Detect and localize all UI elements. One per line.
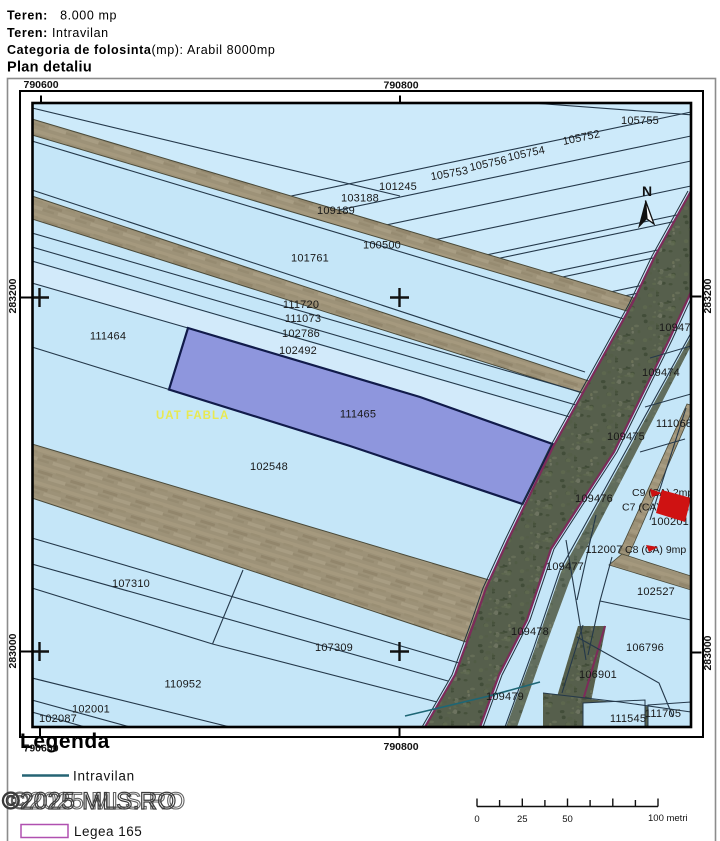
svg-text:101245: 101245 xyxy=(379,181,417,193)
svg-text:110952: 110952 xyxy=(164,679,201,691)
svg-text:102786: 102786 xyxy=(282,328,320,340)
svg-text:109477: 109477 xyxy=(546,561,584,573)
svg-text:105755: 105755 xyxy=(621,115,659,127)
svg-text:107310: 107310 xyxy=(112,578,150,590)
svg-text:102527: 102527 xyxy=(637,586,675,598)
svg-text:283200: 283200 xyxy=(702,278,714,313)
svg-text:790800: 790800 xyxy=(384,741,419,753)
svg-text:Categoria de folosinta(mp): Ar: Categoria de folosinta(mp): Arabil 8000m… xyxy=(7,43,275,57)
svg-text:25: 25 xyxy=(517,814,528,825)
svg-text:109478: 109478 xyxy=(511,626,549,638)
svg-text:50: 50 xyxy=(562,814,573,825)
svg-text:111705: 111705 xyxy=(645,708,681,720)
svg-text:C8 (CA) 9mp: C8 (CA) 9mp xyxy=(625,544,686,556)
svg-text:111465: 111465 xyxy=(340,409,376,421)
svg-text:0: 0 xyxy=(474,814,479,825)
svg-text:790600: 790600 xyxy=(24,743,59,755)
svg-text:109189: 109189 xyxy=(317,205,355,217)
svg-text:102548: 102548 xyxy=(250,461,288,473)
svg-text:106796: 106796 xyxy=(626,642,664,654)
svg-text:100 metri: 100 metri xyxy=(648,813,688,824)
svg-text:Teren: Intravilan: Teren: Intravilan xyxy=(7,26,109,40)
svg-text:109479: 109479 xyxy=(486,691,524,703)
svg-text:283000: 283000 xyxy=(702,635,714,670)
svg-text:111073: 111073 xyxy=(285,313,321,325)
svg-text:111545: 111545 xyxy=(610,713,646,725)
svg-text:UAT FABLA: UAT FABLA xyxy=(156,410,229,422)
svg-text:111464: 111464 xyxy=(90,331,126,343)
svg-text:102087: 102087 xyxy=(39,713,77,725)
svg-text:Plan detaliu: Plan detaliu xyxy=(7,60,92,76)
svg-text:283200: 283200 xyxy=(7,278,19,313)
svg-text:112007: 112007 xyxy=(585,544,622,556)
svg-text:100500: 100500 xyxy=(363,240,401,252)
svg-text:109476: 109476 xyxy=(575,493,613,505)
svg-text:109475: 109475 xyxy=(607,431,645,443)
svg-text:Teren: 8.000 mp: Teren: 8.000 mp xyxy=(7,9,117,23)
svg-text:Intravilan: Intravilan xyxy=(73,769,135,784)
svg-text:107309: 107309 xyxy=(315,642,353,654)
svg-text:111068: 111068 xyxy=(656,418,692,430)
svg-text:103188: 103188 xyxy=(341,193,379,205)
svg-text:102492: 102492 xyxy=(279,345,317,357)
svg-text:©2025 MLS.RO: ©2025 MLS.RO xyxy=(11,788,186,815)
svg-text:283000: 283000 xyxy=(7,633,19,668)
svg-text:790600: 790600 xyxy=(24,79,59,91)
svg-text:Legea 165: Legea 165 xyxy=(74,824,142,839)
svg-text:106901: 106901 xyxy=(579,669,617,681)
svg-text:102001: 102001 xyxy=(72,704,110,716)
svg-text:101761: 101761 xyxy=(291,253,329,265)
svg-text:790800: 790800 xyxy=(384,80,419,92)
svg-text:N: N xyxy=(642,183,652,199)
svg-text:109474: 109474 xyxy=(642,367,680,379)
svg-text:111720: 111720 xyxy=(283,299,319,311)
